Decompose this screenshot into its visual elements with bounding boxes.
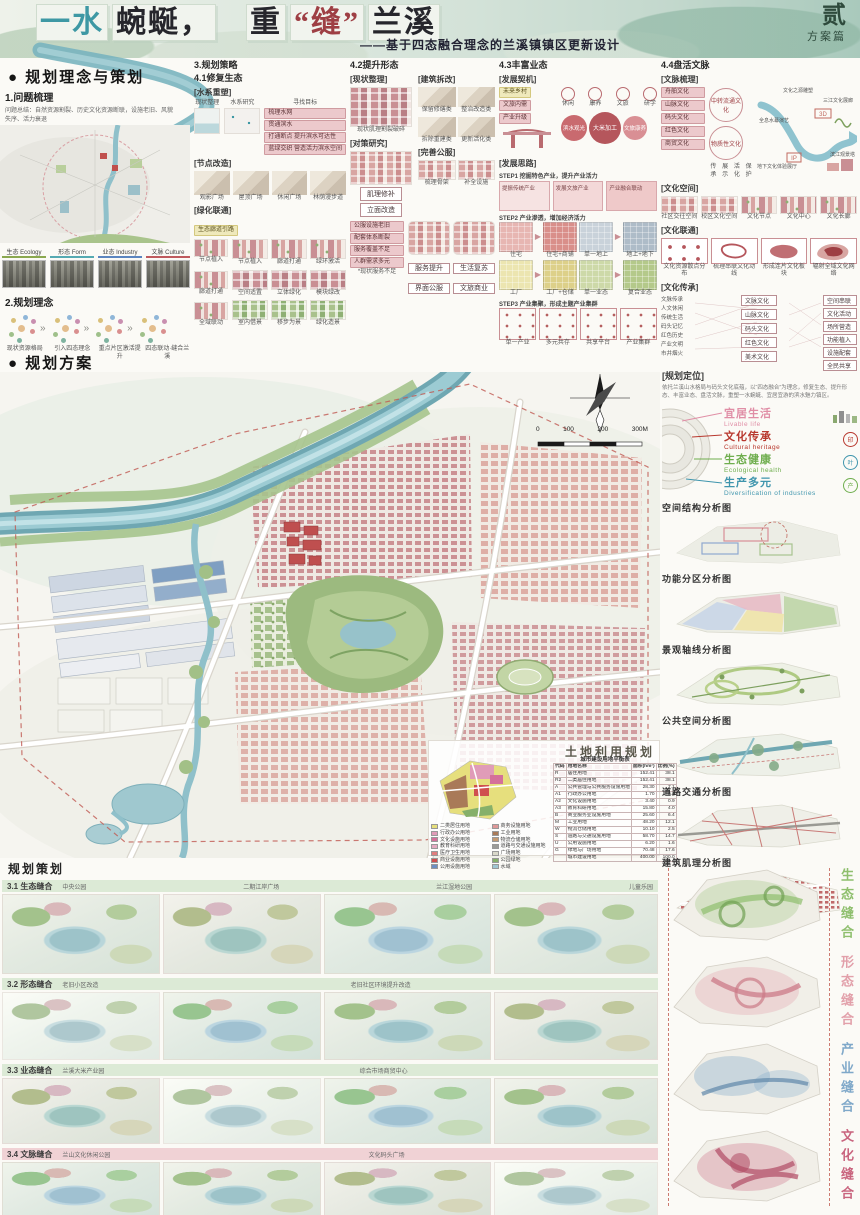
analysis-map-item: 公共空间分析图 (662, 714, 858, 783)
ops-icon: 文旅 (616, 87, 630, 109)
group-sort: [文脉梳理] (661, 74, 857, 85)
green-grid-item: 节点植入 (232, 239, 268, 267)
photo-tag: 业态 Industry (98, 247, 142, 258)
s41-title: 4.1修复生态 (194, 71, 346, 84)
s42-title: 4.2提升形态 (350, 58, 495, 71)
inherit-network: 文脉传承人文休闲传统生活码头记忆红色历史产业文明市井烟火 文脉文化山脉文化码头文… (661, 295, 857, 371)
green-chip: 生态廊道引路 (194, 225, 238, 236)
step3-cell: 共享平台 (580, 308, 617, 348)
form-service: 公服设施老旧 配套体系断裂 服务覆盖不足 人群需求多元 *现状服务不足 服务提升… (350, 221, 495, 295)
water-col: 水系研究 (224, 100, 260, 155)
render-thumbnail (324, 1162, 492, 1215)
title-segment: 重 (246, 4, 286, 41)
link-item: 辐射全域文化网络 (810, 238, 857, 279)
projects-section: 规划策划 3.1 生态缝合中央公园 二期江岸广场兰江湿地公园 儿童乐园 3.2 … (0, 858, 660, 1215)
project-row-header: 3.4 文脉缝合兰山文化休闲公园 文化码头广场 (2, 1148, 658, 1160)
culture-spaces: 社区交往空间 校区文化空间 文化节点 文化中心 文化长廊 (661, 196, 857, 222)
step2-cell: 地上+地下 (623, 222, 657, 260)
goal-list: 宜居生活Livable life 文化传承Cultural heritage印 … (724, 403, 858, 499)
table-row: S道路与交通设施用地58.7014.7 (554, 833, 677, 840)
culture-sort: 舟舶文化 山脉文化 码头文化 红色文化 商贸文化 中转流通文化 物质性文化 传承… (661, 87, 857, 180)
side-step: 节点植入 (194, 239, 228, 265)
network-lines-decor (661, 295, 857, 355)
table-row: U公用设施用地6.201.6 (554, 840, 677, 847)
demo-item: 拆除重建类 (418, 117, 456, 145)
table-row: M工业用地48.2012.1 (554, 819, 677, 826)
strategy-col-industry: 4.3丰富业态 [发展契机] 未来乡村 文旅内需 产业升级 休闲 康养 文旅 研… (499, 58, 657, 364)
layer-item: 生态缝合 (662, 862, 858, 949)
svg-text:3D: 3D (819, 112, 827, 118)
svg-text:IP: IP (791, 156, 797, 162)
green-grid-item: 立体绿化 (271, 270, 307, 298)
table-row: A3教育科研用地15.804.0 (554, 805, 677, 812)
render-thumbnail (2, 894, 160, 974)
water-goals: 寻找目标 梳理水网 贯通滨水 打通断点 提升滨水可达性 蓝绿交织 营造活力滨水空… (264, 100, 346, 155)
goal-item: 生态健康Ecological health叶 (724, 451, 858, 474)
section-heading-concept: ● 规划理念与策划 (8, 66, 192, 87)
bubble: 滨水观光 (561, 115, 587, 141)
ops-icon: 康养 (588, 87, 602, 109)
poster: 一水 蜿蜒， 重 “缝” 兰溪 ——基于四态融合理念的兰溪镇镇区更新设计 贰 方… (0, 0, 860, 1215)
step2-cell: 住宅+商铺 (543, 222, 577, 260)
arrow-icon: » (127, 323, 133, 334)
layer-label: 生态缝合 (837, 868, 856, 944)
goal-chip: 打通断点 提升滨水可达性 (264, 132, 346, 143)
render-thumbnail (2, 1078, 160, 1144)
analysis-map-function (662, 586, 854, 636)
step1-panels: 提振传统产业 发展文旅产业 产业融合联动 (499, 181, 657, 211)
title-segment: 一水 (36, 4, 108, 41)
layer-label: 产业缝合 (837, 1042, 856, 1118)
landuse-block: 土地利用规划 二类居住用地 商务设施用地 行政办公用地 工业用地 文化设施用地 … (428, 740, 660, 856)
ops-right: 休闲 康养 文旅 研学 滨水观光 大米加工 文旅康养 (561, 87, 657, 144)
arrow-icon: » (40, 323, 46, 334)
arrow-icon: ▶ (535, 222, 541, 252)
landuse-table-title: 城市建设用地平衡表 (553, 755, 657, 763)
ops-icon: 休闲 (561, 87, 575, 109)
tag-underline (2, 256, 46, 258)
group-water: [水系重塑] (194, 87, 346, 98)
demo-item: 更新活化类 (458, 117, 496, 145)
table-row: G绿地与广场用地70.4817.6 (554, 847, 677, 854)
step3-cell: 产业集群 (620, 308, 657, 348)
site-photo (98, 260, 142, 288)
table-row: W物流仓储用地10.102.5 (554, 826, 677, 833)
concept-cluster-diagram (91, 311, 125, 345)
analysis-map-landscape (662, 657, 854, 707)
gear-icon: 产 (843, 478, 858, 493)
goal-chip: 梳理水网 (264, 108, 346, 119)
render-thumbnail (494, 1162, 658, 1215)
table-row: A公共管理与公共服务设施用地28.307.1 (554, 784, 677, 791)
node-item: 休闲广场 (272, 171, 308, 203)
panel: 提振传统产业 (499, 181, 550, 211)
photo-tag: 文脉 Culture (146, 247, 190, 258)
scale-bar (538, 442, 642, 446)
layer-label: 形态缝合 (837, 955, 856, 1031)
strategy-col-ecology: 3.规划策略 4.1修复生态 [水系重塑] 现状整理 水系研究 寻找目标 梳理水… (194, 58, 346, 364)
project-row-images (2, 992, 658, 1060)
strategy-col-form: 4.2提升形态 [现状整理] 现状肌理割裂破碎 [对策研究] 肌理修补 立面改造… (350, 58, 495, 364)
step2-row1: 住宅 ▶ 住宅+商铺 单一地上 ▶ 地上+地下 (499, 222, 657, 260)
strategy-col-culture: 4.4盘活文脉 [文脉梳理] 舟舶文化 山脉文化 码头文化 红色文化 商贸文化 … (661, 58, 857, 364)
analysis-map-publicspace (662, 728, 854, 778)
step3-cell: 多元共存 (539, 308, 576, 348)
step2-cell: 单一地上 (579, 222, 613, 260)
project-row-images (2, 894, 658, 974)
project-row-images (2, 1162, 658, 1215)
volume-mark: 贰 方案篇 (807, 4, 846, 44)
table-row: A1行政办公用地1.700.4 (554, 791, 677, 798)
ops-bubbles: 滨水观光 大米加工 文旅康养 (561, 112, 657, 144)
step1-label: STEP1 挖掘特色产业，提升产业活力 (499, 171, 657, 180)
render-thumbnail (494, 1078, 658, 1144)
green-side-steps: 节点植入 廊道打通 全域联动 (194, 239, 228, 328)
group-space: [文化空间] (661, 183, 857, 194)
goal-chip: 蓝绿交织 营造活力滨水空间 (264, 144, 346, 155)
axis-tag: 三江文化展廊 (823, 97, 857, 104)
concept-cluster-diagram (48, 311, 82, 345)
space-item: 社区交往空间 (661, 196, 698, 222)
render-thumbnail (324, 894, 492, 974)
photo-tag: 形态 Form (50, 247, 94, 258)
subtitle: ——基于四态融合理念的兰溪镇镇区更新设计 (360, 36, 620, 53)
space-item: 校区文化空间 (701, 196, 738, 222)
idea-title: 2.规划理念 (5, 294, 192, 309)
idea-diagram-row: » » » (4, 311, 192, 345)
tactic-box: 肌理修补 (360, 187, 402, 201)
table-row: A2文化设施用地3.400.9 (554, 798, 677, 805)
analysis-map-item: 空间结构分析图 (662, 501, 858, 570)
scale-labels: 0100200300M (536, 426, 648, 433)
arrow-icon: ▶ (615, 222, 621, 252)
goal-item: 生产多元Diversification of industries产 (724, 474, 858, 497)
step2-cell: 工厂 (499, 260, 533, 298)
idea-caption: 四态联动·缝合兰溪 (145, 346, 191, 361)
render-thumbnail (2, 1162, 160, 1215)
ops-left: 未来乡村 文旅内需 产业升级 (499, 87, 557, 155)
space-item: 文化中心 (780, 196, 817, 222)
positioning-desc: 依托兰溪山水格局与码头文化底蕴，以“四态融合”为理念，修复生态、提升形态、丰富业… (662, 384, 858, 401)
volume-label: 方案篇 (807, 28, 846, 44)
layer-stack-column: 生态缝合 形态缝合 产业缝合 文化缝合 (662, 862, 858, 1212)
tag-underline (98, 256, 142, 258)
photo-tag: 生态 Ecology (2, 247, 46, 258)
panel: 产业融合联动 (606, 181, 657, 211)
goal-chip: 贯通滨水 (264, 120, 346, 131)
step3-row: 单一产业 多元共存 共享平台 产业集群 (499, 308, 657, 348)
title-segment: “缝” (290, 4, 364, 41)
node-item: 观影广场 (194, 171, 230, 203)
axis-tag: 滨江观景塔 (830, 151, 855, 158)
site-photo (146, 260, 190, 288)
project-row-header: 3.2 形态缝合老旧小区改造 老旧社区环境提升改造 (2, 978, 658, 990)
pub-item: 梳理骨架 (418, 160, 456, 188)
problem-title: 1.问题梳理 (5, 89, 192, 104)
side-step: 廊道打通 (194, 271, 228, 297)
skyline-icon (832, 409, 858, 423)
step2-cell: 复合业态 (623, 260, 657, 298)
step3-label: STEP3 产业集聚，形成主题产业集群 (499, 299, 657, 308)
goal-item: 文化传承Cultural heritage印 (724, 428, 858, 451)
idea-caption: 重点片区激活提升 (97, 346, 143, 361)
photo-strip (2, 260, 190, 288)
step3-cell: 单一产业 (499, 308, 536, 348)
now-fabric-diagram (350, 87, 412, 127)
s43-title: 4.3丰富业态 (499, 58, 657, 71)
ops-icon: 研学 (643, 87, 657, 109)
strategy-heading: 3.规划策略 (194, 58, 346, 71)
table-row: R2二类居住用地152.4138.1 (554, 777, 677, 784)
link-item: 形成连片文化板块 (761, 238, 808, 279)
layer-item: 文化缝合 (662, 1123, 858, 1210)
poster-header: 一水 蜿蜒， 重 “缝” 兰溪 ——基于四态融合理念的兰溪镇镇区更新设计 贰 方… (0, 0, 860, 58)
seal-icon: 印 (843, 432, 858, 447)
tactic-diagram (350, 151, 412, 185)
render-thumbnail (324, 1078, 492, 1144)
title-segment: 蜿蜒， (112, 4, 216, 41)
node-item: 屋顶广场 (233, 171, 269, 203)
side-step: 全域联动 (194, 302, 228, 328)
volume-number: 贰 (807, 4, 846, 28)
render-thumbnail (163, 894, 321, 974)
section-heading-plan: ● 规划方案 (8, 352, 93, 373)
project-row-images (2, 1078, 658, 1144)
tactic-box: 立面改造 (360, 203, 402, 217)
project-row-header: 3.3 业态缝合兰溪大米产业园 综合市场商贸中心 (2, 1064, 658, 1076)
analysis-sidebar: [规划定位] 依托兰溪山水格局与码头文化底蕴，以“四态融合”为理念，修复生态、提… (662, 366, 858, 858)
positioning-diagram: 宜居生活Livable life 文化传承Cultural heritage印 … (662, 403, 858, 499)
green-grid-item: 模块绿改 (310, 270, 346, 298)
group-ops: [发展契机] (499, 74, 657, 85)
green-grid-item: 移步为景 (271, 300, 307, 328)
group-green: [绿化联通] (194, 205, 346, 216)
space-item: 文化节点 (741, 196, 778, 222)
concept-cluster-diagram (4, 311, 38, 345)
culture-list: 舟舶文化 山脉文化 码头文化 红色文化 商贸文化 (661, 87, 705, 180)
green-grid-item: 绿环激活 (310, 239, 346, 267)
fan-diagram (662, 403, 724, 495)
tag-underline (50, 256, 94, 258)
render-thumbnail (2, 992, 160, 1060)
form-now: [现状整理] 现状肌理割裂破碎 [对策研究] 肌理修补 立面改造 (350, 71, 412, 217)
landuse-table-wrap: 城市建设用地平衡表 代码用地名称面积(hm²)比例(%) R居住用地152.41… (553, 755, 657, 862)
step2-cell: 工厂+仓储 (543, 260, 577, 298)
green-grid-item: 廊道打通 (271, 239, 307, 267)
panel: 发展文旅产业 (553, 181, 604, 211)
concept-cluster-diagram (135, 311, 169, 345)
group-inherit: [文化传承] (661, 282, 857, 293)
arrow-icon: » (84, 323, 90, 334)
axis-tag: 文化之源雕塑 (783, 87, 813, 94)
service-blocks: 服务提升 界面公服 生活复苏 文旅商业 (408, 221, 495, 295)
render-thumbnail (163, 1078, 321, 1144)
cluster-circle: 物质性文化 (709, 126, 743, 160)
group-node: [节点改造] (194, 158, 346, 169)
layer-label: 文化缝合 (837, 1129, 856, 1205)
pub-item: 补全设施 (458, 160, 496, 188)
group-idea: [发展思路] (499, 158, 657, 169)
step2-cell: 住宅 (499, 222, 533, 260)
space-item: 文化长廊 (820, 196, 857, 222)
service-stack: 公服设施老旧 配套体系断裂 服务覆盖不足 人群需求多元 *现状服务不足 (350, 221, 404, 295)
positioning-title: [规划定位] (662, 369, 858, 382)
site-photo (2, 260, 46, 288)
s44-title: 4.4盘活文脉 (661, 58, 857, 71)
analysis-map-item: 道路交通分析图 (662, 785, 858, 854)
analysis-map-structure (662, 515, 854, 565)
problem-desc: 问题总结：自然资源割裂、历史文化资源断联，设施老旧、风貌失序、活力衰退 (5, 105, 175, 123)
form-demolish: [建筑拆改] 保留修缮类 整治改造类 拆除重建类 更新活化类 [完善公服] 梳理… (418, 71, 495, 217)
culture-axis-map: 3D IP 文化之源雕塑 三江文化展廊 地下文化体验展厅 全息水幕演艺 滨江观景… (757, 87, 857, 180)
green-grid-item: 室内借景 (232, 300, 268, 328)
demo-item: 整治改造类 (458, 87, 496, 115)
table-row: R居住用地152.4138.1 (554, 770, 677, 777)
culture-links: 文化资源散点分布 梳理串联文化动线 形成连片文化板块 辐射全域文化网络 (661, 238, 857, 279)
gate-icon (499, 124, 555, 150)
projects-heading: 规划策划 (8, 860, 658, 877)
render-thumbnail (163, 1162, 321, 1215)
group-link: [文化联通] (661, 225, 857, 236)
layer-item: 产业缝合 (662, 1036, 858, 1123)
concept-column: ● 规划理念与策划 1.问题梳理 问题总结：自然资源割裂、历史文化资源断联，设施… (0, 58, 192, 358)
leaf-icon: 叶 (843, 455, 858, 470)
analysis-map-roads (662, 799, 854, 849)
link-item: 梳理串联文化动线 (711, 238, 758, 279)
link-item: 文化资源散点分布 (661, 238, 708, 279)
analysis-map-item: 景观轴线分析图 (662, 643, 858, 712)
green-grid: 节点植入 廊道打通 绿环激活 空间适置 立体绿化 模块绿改 室内借景 移步为景 … (232, 239, 346, 328)
green-grid-wrap: 节点植入 廊道打通 全域联动 节点植入 廊道打通 绿环激活 空间适置 立体绿化 … (194, 239, 346, 328)
green-grid-item: 空间适置 (232, 270, 268, 298)
node-renders: 观影广场 屋顶广场 休闲广场 林荫漫步道 (194, 171, 346, 203)
step2-cell: 单一业态 (579, 260, 613, 298)
arrow-icon: ▶ (615, 260, 621, 290)
bubble: 文旅康养 (623, 116, 647, 140)
demo-item: 保留修缮类 (418, 87, 456, 115)
bubble: 大米加工 (589, 112, 621, 144)
problem-map (0, 125, 190, 243)
water-col: 现状整理 (194, 100, 220, 155)
water-diagrams: 现状整理 水系研究 寻找目标 梳理水网 贯通滨水 打通断点 提升滨水可达性 蓝绿… (194, 100, 346, 155)
axis-tag: 地下文化体验展厅 (757, 163, 797, 170)
render-thumbnail (494, 992, 658, 1060)
axis-tag: 全息水幕演艺 (759, 117, 789, 124)
goal-item: 宜居生活Livable life (724, 405, 858, 428)
table-row: B商业服务业设施用地25.606.4 (554, 812, 677, 819)
landuse-map (432, 755, 518, 821)
ops-diagram: 未来乡村 文旅内需 产业升级 休闲 康养 文旅 研学 滨水观光 大米加工 文旅康… (499, 87, 657, 155)
site-photo (50, 260, 94, 288)
project-row-header: 3.1 生态缝合中央公园 二期江岸广场兰江湿地公园 儿童乐园 (2, 880, 658, 892)
arrow-icon: ▶ (535, 260, 541, 290)
layer-item: 形态缝合 (662, 949, 858, 1036)
service-block: 生活复苏 文旅商业 (453, 221, 495, 295)
render-thumbnail (163, 992, 321, 1060)
analysis-map-item: 功能分区分析图 (662, 572, 858, 641)
render-thumbnail (494, 894, 658, 974)
step2-label: STEP2 产业渗透，增加经济活力 (499, 213, 657, 222)
landuse-table: 代码用地名称面积(hm²)比例(%) R居住用地152.4138.1 R2二类居… (553, 763, 677, 862)
service-block: 服务提升 界面公服 (408, 221, 450, 295)
render-thumbnail (324, 992, 492, 1060)
tag-underline (146, 256, 190, 258)
node-item: 林荫漫步道 (310, 171, 346, 203)
step2-row2: 工厂 ▶ 工厂+仓储 单一业态 ▶ 复合业态 (499, 260, 657, 298)
green-grid-item: 绿化造景 (310, 300, 346, 328)
cluster-circle: 中转流通文化 (709, 88, 743, 122)
photo-tag-row: 生态 Ecology 形态 Form 业态 Industry 文脉 Cultur… (2, 247, 190, 258)
culture-clusters: 中转流通文化 物质性文化 传承展示活化保护 (709, 87, 753, 180)
